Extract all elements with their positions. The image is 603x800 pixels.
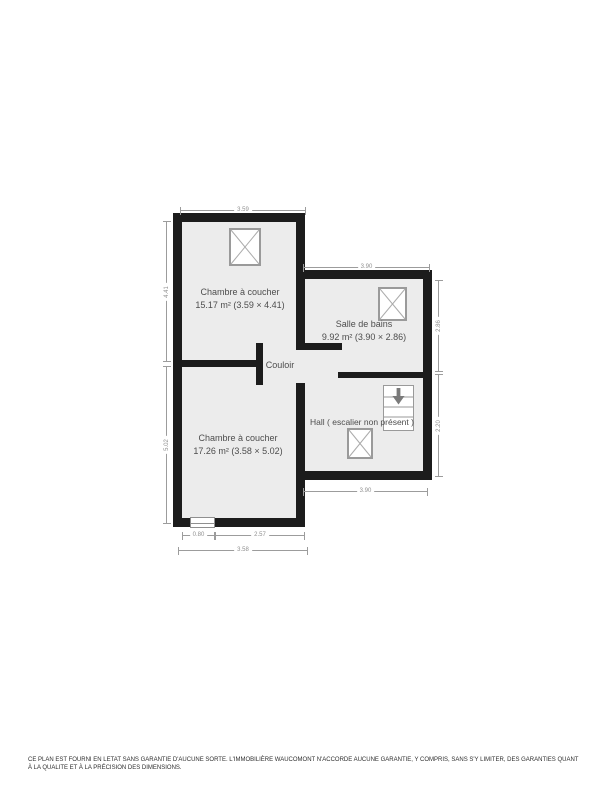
dim-tick [435, 371, 443, 372]
wall-left [173, 213, 182, 527]
room-label-couloir: Couloir [252, 359, 308, 372]
dimension-value: 2.57 [251, 532, 269, 538]
dim-tick [163, 361, 171, 362]
dim-tick [435, 280, 443, 281]
dimension-salle-de-bains-depth: 2.86 [438, 280, 439, 372]
dim-tick [163, 221, 171, 222]
dimension-hall-width: 3.90 [303, 491, 428, 492]
dim-tick [303, 264, 304, 272]
dim-tick [178, 547, 179, 555]
room-name: Chambre à coucher [172, 432, 304, 445]
dim-tick [435, 476, 443, 477]
room-label-hall: Hall ( escalier non présent ) [298, 416, 426, 429]
dim-tick [163, 366, 171, 367]
wall-salle-de-bains-top [296, 270, 432, 279]
wall-hall-top [338, 372, 432, 378]
dimension-value: 3.90 [358, 264, 376, 270]
dimension-value: 3.58 [234, 547, 252, 553]
dimension-chambre2-width: 3.58 [178, 550, 308, 551]
room-name: Salle de bains [298, 318, 430, 331]
room-label-chambre2: Chambre à coucher 17.26 m² (3.58 × 5.02) [172, 432, 304, 457]
dimension-chambre1-width: 3.59 [180, 210, 306, 211]
dim-tick [429, 264, 430, 272]
dimension-chambre2-depth: 5.02 [166, 366, 167, 524]
room-area: 17.26 m² (3.58 × 5.02) [172, 445, 304, 458]
dimension-chambre1-depth: 4.41 [166, 221, 167, 362]
disclaimer-text: CE PLAN EST FOURNI EN LETAT SANS GARANTI… [28, 757, 584, 772]
window-icon [190, 517, 215, 528]
window-glass-line [191, 523, 214, 524]
wall-chambre1-bottom [182, 360, 258, 367]
window-icon [378, 287, 407, 321]
dim-tick [304, 532, 305, 540]
window-icon [347, 428, 373, 459]
room-label-salle-de-bains: Salle de bains 9.92 m² (3.90 × 2.86) [298, 318, 430, 343]
wall-salle-de-bains-bottom [296, 343, 342, 350]
room-name: Hall ( escalier non présent ) [298, 416, 426, 429]
dimension-value: 2.20 [436, 417, 442, 435]
dimension-value: 2.86 [436, 317, 442, 335]
room-name: Chambre à coucher [175, 286, 305, 299]
dimension-hall-depth: 2.20 [438, 374, 439, 477]
floor-plan-page: Chambre à coucher 15.17 m² (3.59 × 4.41)… [0, 0, 603, 800]
dim-tick [305, 207, 306, 215]
dimension-salle-de-bains-width: 3.90 [303, 267, 430, 268]
dim-tick [435, 374, 443, 375]
dimension-value: 5.02 [164, 436, 170, 454]
dimension-value: 0.80 [190, 532, 208, 538]
room-label-chambre1: Chambre à coucher 15.17 m² (3.59 × 4.41) [175, 286, 305, 311]
dimension-window-offset: 0.80 [182, 535, 215, 536]
wall-top-chambre1 [173, 213, 305, 222]
dim-tick [303, 488, 304, 496]
dim-tick [307, 547, 308, 555]
dimension-value: 4.41 [164, 283, 170, 301]
dimension-value: 3.59 [234, 207, 252, 213]
dim-tick [215, 532, 216, 540]
dim-tick [182, 532, 183, 540]
wall-hall-bottom [296, 471, 432, 480]
room-area: 15.17 m² (3.59 × 4.41) [175, 299, 305, 312]
window-icon [229, 228, 261, 266]
room-name: Couloir [252, 359, 308, 372]
dimension-value: 3.90 [357, 488, 375, 494]
dim-tick [180, 207, 181, 215]
room-area: 9.92 m² (3.90 × 2.86) [298, 331, 430, 344]
dim-tick [163, 523, 171, 524]
dimension-wall-segment: 2.57 [215, 535, 305, 536]
dim-tick [427, 488, 428, 496]
